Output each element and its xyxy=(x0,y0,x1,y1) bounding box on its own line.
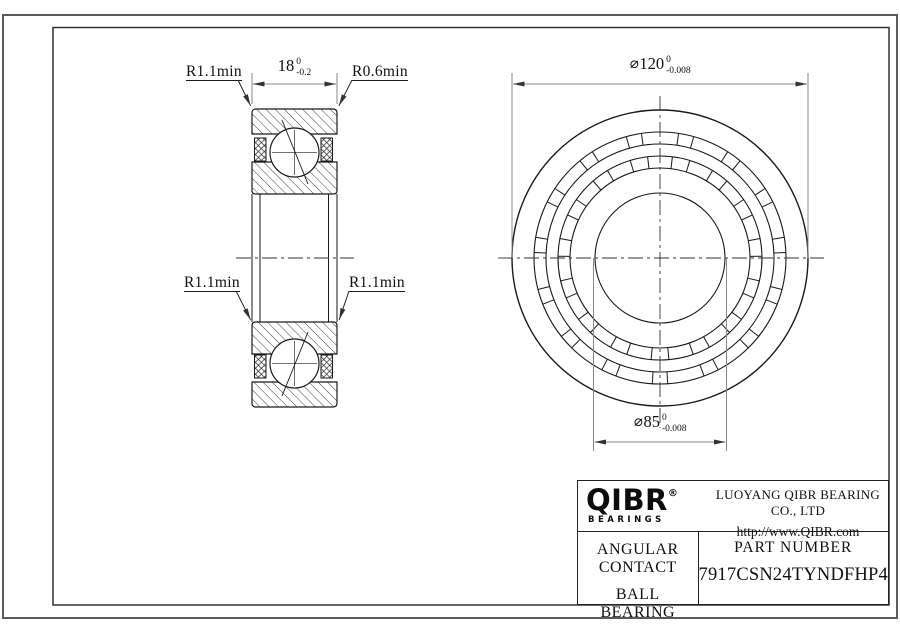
diameter-symbol: ⌀ xyxy=(629,56,638,71)
leader-top-right xyxy=(339,80,352,106)
product-type-line1: ANGULAR CONTACT xyxy=(578,541,698,577)
od-dimension-label: ⌀ 120 0 -0.008 xyxy=(590,56,730,78)
front-view xyxy=(498,96,824,428)
title-block-header-row: QIBR® BEARINGS LUOYANG QIBR BEARING CO.,… xyxy=(578,481,888,532)
cage-bottom-left xyxy=(255,355,267,378)
bore-tolerance: 0 -0.008 xyxy=(662,413,687,435)
title-block-detail-row: ANGULAR CONTACT BALL BEARING PART NUMBER… xyxy=(578,532,888,605)
company-name: LUOYANG QIBR BEARING CO., LTD xyxy=(708,487,888,519)
diameter-symbol: ⌀ xyxy=(633,414,642,429)
radius-label-top-left: R1.1min xyxy=(186,64,242,81)
width-dimension-label: 18 0 -0.2 xyxy=(262,58,327,80)
part-number-label: PART NUMBER xyxy=(699,539,888,557)
radius-label-mid-left: R1.1min xyxy=(184,275,240,292)
part-number-value: 7917CSN24TYNDFHP4 xyxy=(699,565,888,586)
logo-text: QIBR xyxy=(586,483,668,517)
section-top xyxy=(252,109,337,194)
cage-bottom-right xyxy=(321,355,333,378)
product-type-line2: BALL BEARING xyxy=(578,586,698,622)
width-tolerance: 0 -0.2 xyxy=(296,57,311,79)
registered-mark-icon: ® xyxy=(668,488,678,499)
cage-top-left xyxy=(255,138,267,161)
title-block: QIBR® BEARINGS LUOYANG QIBR BEARING CO.,… xyxy=(577,480,889,605)
leader-top-left xyxy=(238,80,251,106)
part-number-cell: PART NUMBER 7917CSN24TYNDFHP4 xyxy=(699,532,888,605)
leader-mid-right xyxy=(339,291,349,320)
leader-mid-left xyxy=(236,291,251,320)
section-view xyxy=(236,109,354,407)
od-tolerance: 0 -0.008 xyxy=(666,55,691,77)
qibr-logo: QIBR® BEARINGS xyxy=(578,481,708,531)
drawing-sheet: R1.1min R0.6min R1.1min R1.1min 18 0 -0.… xyxy=(0,0,900,636)
cage-top-right xyxy=(321,138,333,161)
logo-tagline: BEARINGS xyxy=(588,515,708,525)
radius-label-mid-right: R1.1min xyxy=(349,275,405,292)
section-bottom xyxy=(252,322,337,407)
radius-label-top-right: R0.6min xyxy=(352,64,408,81)
company-info: LUOYANG QIBR BEARING CO., LTD http://www… xyxy=(708,481,888,531)
bore-dimension-label: ⌀ 85 0 -0.008 xyxy=(595,414,725,436)
product-type-cell: ANGULAR CONTACT BALL BEARING xyxy=(578,532,699,605)
